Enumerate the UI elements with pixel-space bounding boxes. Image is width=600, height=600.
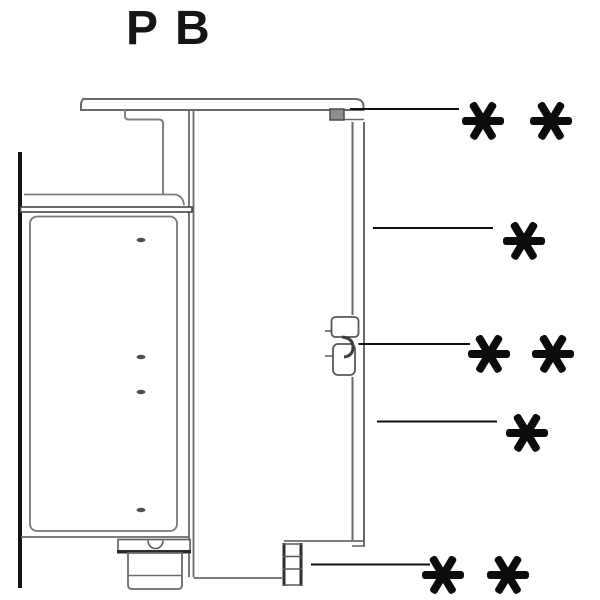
annotation-side-panel-lower [506,412,548,454]
cabinet-section-drawing [0,0,600,600]
cabinet-carcass [21,195,193,538]
asterisk-mark [462,100,504,142]
plinth-rail [117,540,191,552]
asterisk-mark [506,412,548,454]
annotation-panel-connector [468,333,574,375]
diagram-page: PB [0,0,600,600]
support-bracket [125,110,163,194]
annotation-base-fixing [422,554,529,596]
annotation-side-panel-upper [503,220,545,262]
panel-connector-fitting [325,315,361,377]
asterisk-mark [530,100,572,142]
countertop-fixing-block [330,109,344,120]
annotation-countertop-fixing [462,100,572,142]
asterisk-mark [422,554,464,596]
asterisk-mark [503,220,545,262]
cabinet-back-edge [189,110,283,578]
bottom-fixing-fitting [282,542,303,587]
asterisk-mark [468,333,510,375]
countertop [81,99,364,120]
base-leg [128,553,182,589]
asterisk-mark [532,333,574,375]
asterisk-mark [487,554,529,596]
